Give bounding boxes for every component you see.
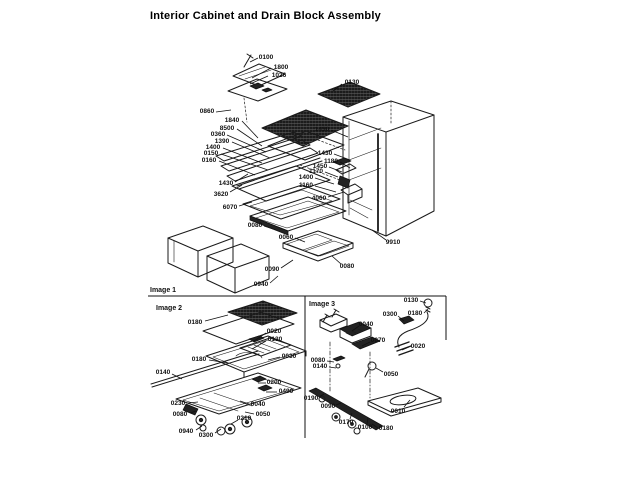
part-number-label: 0020 bbox=[411, 343, 426, 350]
part-number-label: 0090 bbox=[265, 266, 280, 273]
leader-line bbox=[227, 135, 266, 152]
part-number-label: 0040 bbox=[251, 401, 266, 408]
section-label-image1: Image 1 bbox=[150, 287, 176, 294]
leader-line bbox=[215, 429, 221, 433]
part-number-label: 0180 bbox=[188, 319, 203, 326]
part-number-label: 1430 bbox=[219, 180, 234, 187]
image3-drawing bbox=[309, 299, 441, 434]
exploded-parts-diagram: Image 1 Image 2 Image 3 0100180010260130… bbox=[0, 0, 640, 480]
part-number-label: 0080 bbox=[248, 222, 263, 229]
part-number-label: 0490 bbox=[279, 388, 294, 395]
leader-line bbox=[235, 174, 248, 182]
part-number-label: 0070 bbox=[371, 337, 386, 344]
part-number-label: 0160 bbox=[202, 157, 217, 164]
connector bbox=[399, 316, 414, 324]
shelf-frame-assembly bbox=[206, 336, 306, 391]
evaporator bbox=[262, 110, 348, 146]
part-number-label: 1800 bbox=[274, 64, 289, 71]
roller-frame bbox=[176, 373, 301, 435]
part-number-label: 0100 bbox=[358, 424, 373, 431]
part-number-label: 0150 bbox=[204, 150, 219, 157]
part-number-label: 0090 bbox=[321, 403, 336, 410]
part-number-label: 0050 bbox=[384, 371, 399, 378]
part-number-label: 1430 bbox=[315, 126, 330, 133]
part-number-label: 0010 bbox=[391, 408, 406, 415]
part-number-label: 0080 bbox=[340, 263, 355, 270]
part-number-label: 0180 bbox=[379, 425, 394, 432]
leader-line bbox=[245, 412, 254, 414]
part-number-label: 0230 bbox=[171, 400, 186, 407]
leader-line bbox=[196, 426, 202, 430]
leader-line bbox=[216, 110, 231, 112]
crisper-bin bbox=[168, 226, 233, 277]
leader-line bbox=[242, 121, 258, 138]
part-number-label: 0190 bbox=[304, 395, 319, 402]
part-number-label: 9910 bbox=[386, 239, 401, 246]
part-number-label: 0140 bbox=[313, 363, 328, 370]
part-number-label: 0170 bbox=[339, 419, 354, 426]
leader-line bbox=[328, 192, 344, 197]
leader-line bbox=[420, 301, 426, 303]
part-number-label: 0060 bbox=[279, 234, 294, 241]
part-number-label: 1400 bbox=[299, 174, 314, 181]
bulb-icon bbox=[424, 299, 432, 312]
light-housing-plate bbox=[228, 79, 287, 101]
part-number-label: 0940 bbox=[179, 428, 194, 435]
part-number-label: 0180 bbox=[408, 310, 423, 317]
leader-line bbox=[270, 276, 278, 283]
part-number-label: 0020 bbox=[267, 328, 282, 335]
part-number-label: 0210 bbox=[237, 415, 252, 422]
leader-line bbox=[250, 58, 258, 62]
part-number-label: 0130 bbox=[404, 297, 419, 304]
manual-page: Interior Cabinet and Drain Block Assembl… bbox=[0, 0, 640, 480]
leader-line bbox=[329, 367, 336, 368]
part-number-label: 0050 bbox=[256, 411, 271, 418]
part-number-label: 0860 bbox=[200, 108, 215, 115]
leader-line bbox=[205, 315, 228, 321]
part-number-label: 1430 bbox=[318, 150, 333, 157]
leader-line bbox=[281, 260, 293, 268]
part-number-label: 4060 bbox=[312, 195, 327, 202]
part-number-label: 0130 bbox=[268, 336, 283, 343]
leader-line bbox=[325, 172, 338, 177]
part-number-label: 0040 bbox=[359, 321, 374, 328]
part-number-label: 0300 bbox=[199, 432, 214, 439]
part-number-label: 6070 bbox=[223, 204, 238, 211]
part-number-label: 1840 bbox=[225, 117, 240, 124]
switch-part bbox=[250, 83, 264, 89]
section-label-image2: Image 2 bbox=[156, 305, 182, 312]
part-number-label: 0030 bbox=[282, 353, 297, 360]
leader-line bbox=[376, 368, 383, 372]
leader-line bbox=[232, 142, 270, 158]
part-number-label: 1160 bbox=[299, 182, 313, 189]
section-label-image3: Image 3 bbox=[309, 301, 335, 308]
cabinet-shell bbox=[343, 101, 434, 236]
part-number-label: 0100 bbox=[259, 54, 274, 61]
part-number-label: 0200 bbox=[267, 379, 282, 386]
part-number-label: 0360 bbox=[211, 131, 226, 138]
screw-icon bbox=[244, 54, 253, 67]
part-number-label: 0140 bbox=[156, 369, 171, 376]
part-number-label: 3620 bbox=[214, 191, 229, 198]
leader-line bbox=[315, 178, 334, 184]
wire-harness bbox=[398, 312, 428, 347]
leader-line bbox=[237, 129, 262, 146]
leader-line bbox=[252, 68, 271, 78]
part-number-label: 0940 bbox=[254, 281, 269, 288]
part-number-label: 0130 bbox=[345, 79, 360, 86]
part-number-label: 0300 bbox=[383, 311, 398, 318]
leader-line bbox=[327, 361, 334, 362]
crisper-cover bbox=[283, 231, 353, 261]
part-number-label: 0080 bbox=[173, 411, 188, 418]
part-number-label: 1026 bbox=[272, 72, 287, 79]
part-number-label: 0180 bbox=[192, 356, 207, 363]
leader-line bbox=[331, 130, 348, 137]
